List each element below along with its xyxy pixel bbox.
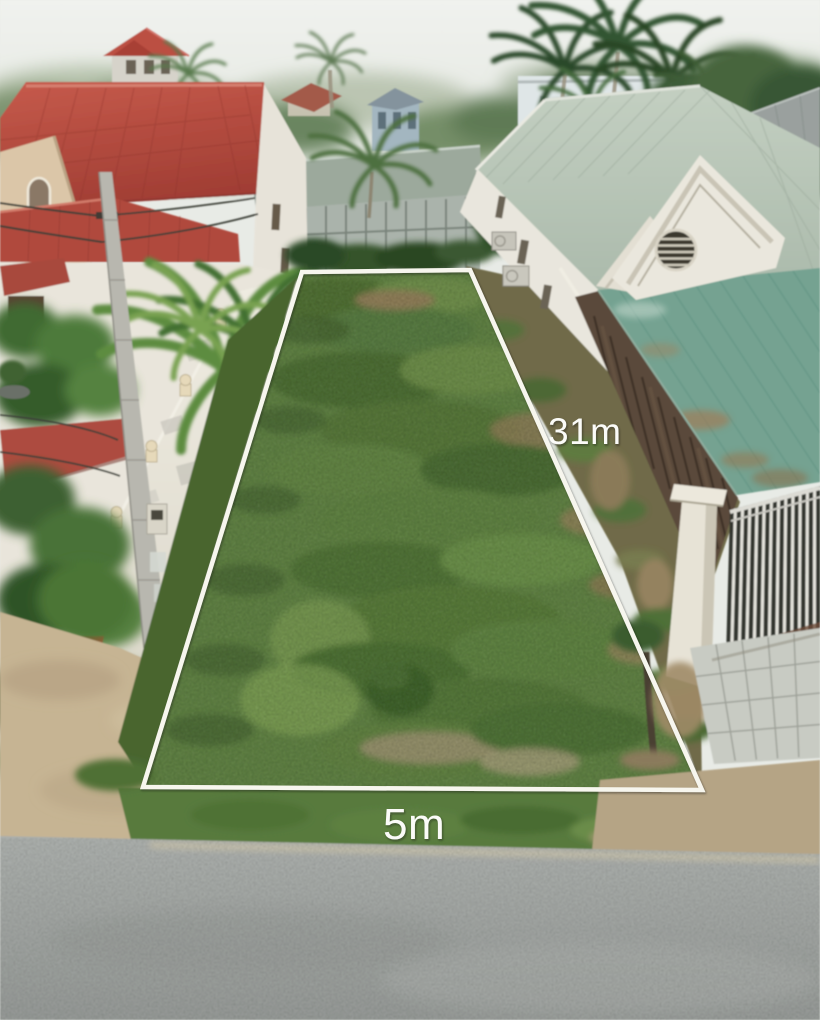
paved-driveway <box>690 628 820 764</box>
asphalt-road <box>0 836 820 1020</box>
side-dimension-label: 31m <box>548 411 621 452</box>
frontage-dimension-label: 5m <box>383 800 445 849</box>
round-louver-vent <box>656 230 696 270</box>
aerial-land-plot-photo: 31m 5m <box>0 0 820 1020</box>
